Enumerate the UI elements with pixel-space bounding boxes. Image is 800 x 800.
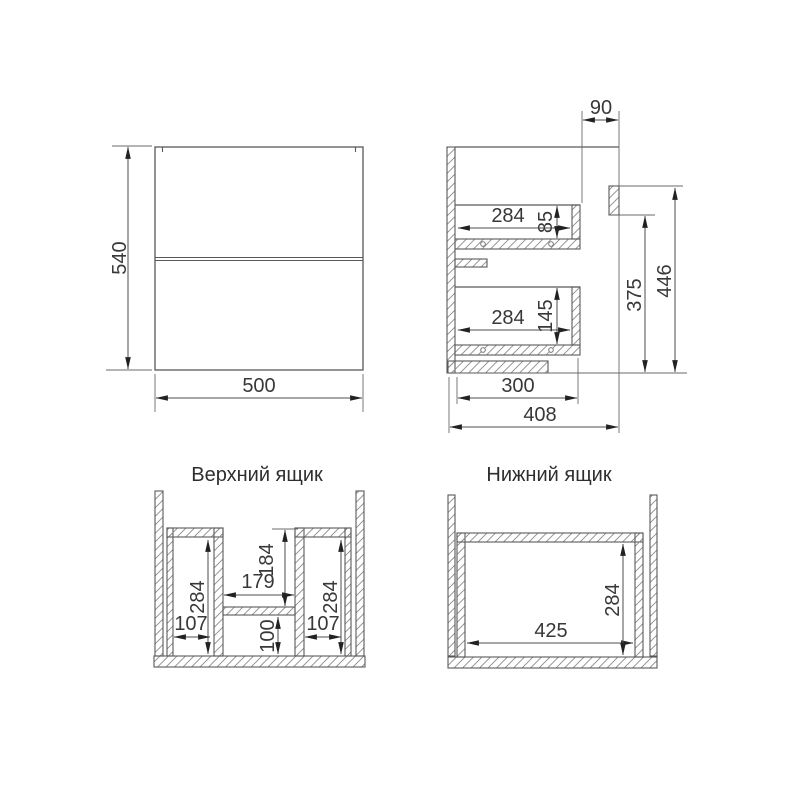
dim-label-left-inner-height: 284 [187, 580, 209, 613]
dim-label-total-depth: 408 [523, 404, 556, 426]
dim-label-inner-height: 284 [602, 583, 624, 616]
lower-drawer-bottom-panel [455, 345, 580, 355]
side-section-view: 90 284 85 284 145 375 446 [447, 97, 687, 433]
cabinet-side-panel-left [448, 495, 455, 656]
back-panel-section [447, 147, 455, 373]
dim-label-inner-width: 425 [534, 620, 567, 642]
cabinet-side-panel-left [155, 491, 163, 656]
compartment-wall [167, 528, 173, 656]
dim-label-bottom-depth: 300 [501, 375, 534, 397]
upper-drawer-front-wall [572, 205, 580, 239]
drawer-box-wall-right [635, 533, 643, 657]
screw-marker [481, 242, 486, 247]
drawer-box-back-panel [457, 533, 643, 542]
drawer-bottom-panel [154, 656, 365, 667]
dim-label-lower-height: 145 [535, 299, 557, 332]
center-recess-panel [223, 607, 295, 615]
compartment-top-panel [295, 528, 351, 537]
cabinet-side-panel-right [650, 495, 657, 656]
lower-drawer-title: Нижний ящик [486, 464, 611, 486]
dim-label-top-to-bottom: 446 [654, 264, 676, 297]
screw-marker [549, 348, 554, 353]
upper-drawer-bottom-panel [455, 239, 580, 249]
lower-drawer-front-wall [572, 287, 580, 345]
dim-label-front-width: 500 [242, 375, 275, 397]
dim-label-center-gap-width: 179 [241, 571, 274, 593]
dim-label-left-inner-width: 107 [174, 613, 207, 635]
dim-label-lower-depth: 284 [491, 307, 524, 329]
screw-marker [549, 242, 554, 247]
dim-label-front-height: 540 [109, 241, 131, 274]
cabinet-bottom-panel [448, 361, 548, 373]
cabinet-technical-drawing: 540 500 90 284 85 [0, 0, 800, 800]
upper-drawer-title: Верхний ящик [191, 464, 323, 486]
dim-label-center-bottom-height: 100 [257, 619, 279, 652]
technical-drawing-page: 540 500 90 284 85 [0, 0, 800, 800]
drawer-box-wall-left [457, 533, 465, 657]
compartment-wall [214, 528, 223, 656]
cabinet-front-outline [155, 147, 363, 370]
dim-label-upper-height: 85 [535, 211, 557, 233]
compartment-wall [345, 528, 351, 656]
drawer-rail-section [455, 259, 487, 267]
dim-label-bracket-to-bottom: 375 [624, 278, 646, 311]
drawer-bottom-panel [448, 657, 657, 668]
compartment-wall [295, 528, 304, 656]
lower-drawer-view: Нижний ящик 425 284 [448, 464, 657, 668]
dim-label-right-inner-height: 284 [320, 580, 342, 613]
dim-label-upper-depth: 284 [491, 205, 524, 227]
upper-drawer-view: Верхний ящик 284 107 284 107 184 179 100 [154, 464, 365, 667]
wall-bracket-section [609, 186, 619, 215]
dim-label-top-overhang: 90 [590, 97, 612, 119]
dim-label-right-inner-width: 107 [306, 613, 339, 635]
screw-marker [481, 348, 486, 353]
front-view: 540 500 [106, 146, 363, 412]
cabinet-side-panel-right [356, 491, 364, 656]
